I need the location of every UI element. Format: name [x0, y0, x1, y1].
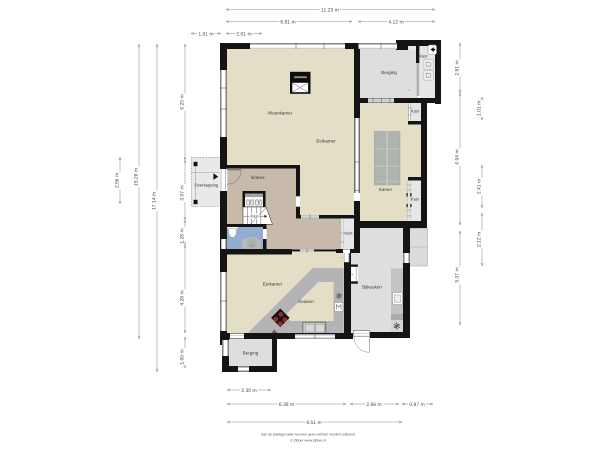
svg-text:Kast: Kast	[250, 214, 259, 219]
svg-text:Entree: Entree	[251, 175, 265, 180]
svg-text:17.14 m: 17.14 m	[151, 192, 157, 210]
svg-text:1.60 m: 1.60 m	[179, 349, 185, 364]
svg-text:Overkapping: Overkapping	[195, 183, 219, 188]
svg-text:11.23 m: 11.23 m	[321, 7, 339, 13]
svg-text:Kast: Kast	[411, 197, 420, 202]
svg-text:2.41 m: 2.41 m	[476, 179, 482, 194]
svg-text:Aan de plattegronden kunnen ge: Aan de plattegronden kunnen geen rechten…	[261, 432, 355, 436]
svg-text:Kamer: Kamer	[379, 187, 393, 192]
svg-text:15.28 m: 15.28 m	[133, 168, 139, 186]
svg-text:2.66 m: 2.66 m	[366, 402, 381, 408]
svg-text:Berging: Berging	[381, 70, 397, 75]
svg-text:Kast: Kast	[344, 231, 353, 236]
svg-text:1.01 m: 1.01 m	[476, 101, 482, 116]
svg-text:6.38 m: 6.38 m	[279, 402, 294, 408]
svg-text:Kast: Kast	[411, 109, 420, 114]
svg-text:© Zibber www.zibber.nl: © Zibber www.zibber.nl	[290, 438, 326, 442]
svg-text:2.12 m: 2.12 m	[476, 232, 482, 247]
svg-text:4.28 m: 4.28 m	[179, 290, 185, 305]
svg-text:Kast: Kast	[419, 54, 428, 59]
svg-text:0.97 m: 0.97 m	[409, 402, 424, 408]
svg-text:5.37 m: 5.37 m	[454, 267, 460, 282]
svg-text:1.61 m: 1.61 m	[198, 31, 213, 37]
svg-text:Eetkamer: Eetkamer	[263, 282, 283, 287]
svg-text:2.30 m: 2.30 m	[241, 388, 256, 394]
svg-text:9.51 m: 9.51 m	[306, 420, 321, 426]
svg-text:1.28 m: 1.28 m	[179, 228, 185, 243]
svg-text:2.01 m: 2.01 m	[236, 31, 251, 37]
svg-text:3.07 m: 3.07 m	[179, 185, 185, 200]
svg-text:6.91 m: 6.91 m	[280, 19, 295, 25]
svg-text:2.56 m: 2.56 m	[114, 173, 120, 188]
svg-text:Woonkamer: Woonkamer	[268, 111, 293, 116]
svg-text:Eetkamer: Eetkamer	[316, 139, 336, 144]
svg-text:6.94 m: 6.94 m	[454, 149, 460, 164]
svg-text:Bijkeuken: Bijkeuken	[362, 285, 382, 290]
svg-text:6.20 m: 6.20 m	[179, 94, 185, 109]
svg-text:2.81 m: 2.81 m	[454, 60, 460, 75]
svg-text:4.12 m: 4.12 m	[388, 19, 403, 25]
svg-text:Keuken: Keuken	[298, 299, 314, 304]
svg-text:Berging: Berging	[243, 351, 259, 356]
